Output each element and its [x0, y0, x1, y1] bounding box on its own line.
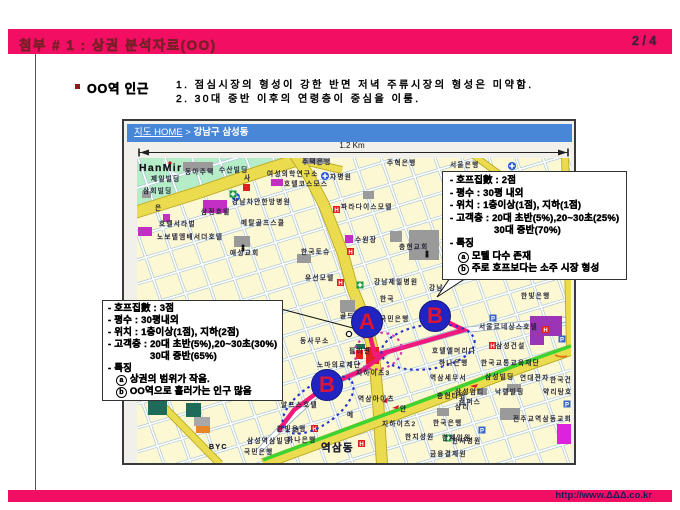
svg-text:H: H — [490, 344, 494, 350]
svg-text:HanMir: HanMir — [139, 162, 182, 174]
svg-text:삼리: 삼리 — [455, 402, 470, 411]
svg-text:H: H — [359, 442, 363, 448]
svg-text:필리핀: 필리핀 — [349, 346, 371, 355]
svg-text:P: P — [565, 402, 569, 408]
svg-text:H: H — [543, 328, 547, 334]
svg-text:연대전자: 연대전자 — [520, 373, 549, 382]
svg-text:제일빌딩: 제일빌딩 — [151, 174, 180, 183]
svg-text:메: 메 — [347, 411, 354, 419]
svg-text:파라다이스모텔: 파라다이스모텔 — [341, 202, 393, 211]
svg-text:한제일원: 한제일원 — [442, 433, 471, 442]
svg-text:한국: 한국 — [380, 295, 395, 303]
svg-text:한국교통교육재단: 한국교통교육재단 — [481, 358, 540, 367]
svg-text:낙렐빌딩: 낙렐빌딩 — [495, 387, 524, 396]
svg-text:은: 은 — [155, 204, 162, 212]
svg-text:P: P — [480, 428, 484, 434]
svg-text:강남차안한방병원: 강남차안한방병원 — [232, 197, 291, 206]
svg-text:한국토슈: 한국토슈 — [301, 248, 330, 256]
svg-text:삼정호텔: 삼정호텔 — [201, 207, 230, 216]
svg-text:삼성건설: 삼성건설 — [496, 341, 525, 350]
svg-text:전주교역삼동교회: 전주교역삼동교회 — [513, 414, 571, 423]
svg-text:B: B — [427, 303, 443, 328]
svg-text:삼성빌딩: 삼성빌딩 — [485, 372, 514, 381]
svg-text:안: 안 — [400, 404, 407, 413]
svg-text:동아주택: 동아주택 — [185, 167, 214, 176]
svg-text:수산빌딩: 수산빌딩 — [219, 165, 248, 174]
svg-text:한국건: 한국건 — [550, 375, 571, 384]
svg-text:주택은행: 주택은행 — [302, 158, 331, 166]
svg-text:역: 역 — [293, 426, 300, 435]
svg-text:BYC: BYC — [209, 444, 228, 451]
svg-text:수원장: 수원장 — [355, 235, 377, 244]
svg-text:유선모텔: 유선모텔 — [305, 273, 334, 282]
svg-text:H: H — [338, 281, 342, 287]
svg-text:한빛은행: 한빛은행 — [277, 424, 306, 433]
svg-text:P: P — [491, 316, 495, 322]
svg-text:국민은행: 국민은행 — [244, 447, 273, 456]
svg-text:역삼동: 역삼동 — [321, 441, 354, 454]
svg-text:국민은행: 국민은행 — [380, 314, 409, 323]
svg-text:알프스호텔: 알프스호텔 — [281, 400, 318, 409]
svg-text:메탈골프스쿨: 메탈골프스쿨 — [241, 219, 285, 227]
svg-text:충현교회: 충현교회 — [399, 242, 428, 251]
svg-text:호텔엘머리다: 호텔엘머리다 — [432, 346, 476, 355]
svg-text:지하이츠3: 지하이츠3 — [356, 368, 390, 377]
svg-text:하나은행: 하나은행 — [287, 435, 316, 444]
svg-text:강남: 강남 — [429, 283, 444, 292]
svg-text:역삼세무서: 역삼세무서 — [430, 373, 467, 382]
svg-text:역삼아이츠: 역삼아이츠 — [358, 394, 395, 403]
svg-text:자병원: 자병원 — [330, 172, 352, 181]
svg-text:노보텔엠배서더호텔: 노보텔엠배서더호텔 — [157, 232, 223, 241]
svg-text:약리탕호: 약리탕호 — [543, 387, 571, 396]
svg-text:금융결제원: 금융결제원 — [430, 449, 467, 458]
svg-text:서울르네상스호텔: 서울르네상스호텔 — [479, 322, 538, 331]
svg-text:서울은행: 서울은행 — [450, 160, 479, 169]
svg-text:H: H — [312, 427, 316, 433]
svg-text:애성교회: 애성교회 — [230, 248, 259, 257]
svg-text:A: A — [359, 309, 375, 334]
svg-text:P: P — [560, 337, 564, 343]
svg-text:노마의로제단: 노마의로제단 — [317, 360, 361, 369]
svg-text:삼회빌딩: 삼회빌딩 — [143, 186, 172, 195]
svg-text:H: H — [348, 250, 352, 256]
svg-text:한빛은행: 한빛은행 — [521, 291, 550, 300]
svg-text:사: 사 — [244, 173, 251, 182]
svg-text:충현타워: 충현타워 — [437, 391, 466, 400]
svg-text:B: B — [319, 372, 335, 397]
svg-text:1.2 Km: 1.2 Km — [339, 141, 365, 150]
svg-text:지하이츠2: 지하이츠2 — [382, 419, 416, 428]
svg-text:골드: 골드 — [340, 312, 355, 320]
svg-text:호텔서라벌: 호텔서라벌 — [159, 219, 196, 228]
svg-text:H: H — [334, 208, 338, 214]
svg-text:호텔코스모스: 호텔코스모스 — [284, 180, 328, 188]
svg-text:한국은행: 한국은행 — [433, 418, 462, 427]
svg-text:동사무소: 동사무소 — [300, 336, 329, 345]
svg-text:하나은행: 하나은행 — [439, 358, 468, 367]
svg-text:주혁은행: 주혁은행 — [387, 158, 416, 167]
svg-text:삼성역삼빌딩: 삼성역삼빌딩 — [247, 436, 291, 445]
svg-text:한지성원: 한지성원 — [405, 432, 434, 441]
svg-text:여성의학연구소: 여성의학연구소 — [267, 169, 319, 178]
svg-text:강남제일병원: 강남제일병원 — [374, 277, 418, 286]
